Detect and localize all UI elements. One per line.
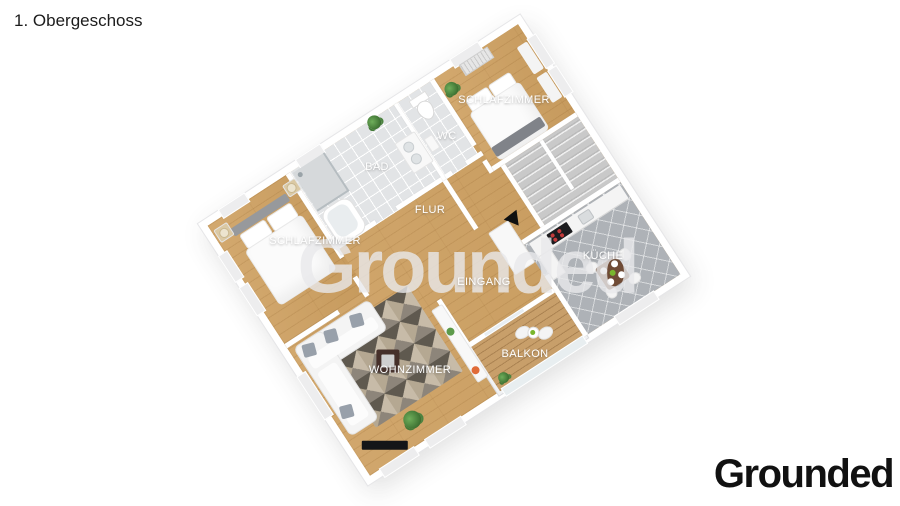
floorplan-canvas: Grounded SCHLAFZIMMER WC BAD FLUR SCHLAF…	[0, 0, 900, 506]
grounded-logo: Grounded	[714, 452, 893, 497]
room-label-schlafzimmer-top: SCHLAFZIMMER	[458, 94, 550, 106]
room-label-balkon: BALKON	[501, 348, 548, 360]
room-label-kueche: KÜCHE	[583, 250, 624, 262]
room-label-schlafzimmer-left: SCHLAFZIMMER	[269, 235, 361, 247]
page-title: 1. Obergeschoss	[14, 11, 143, 31]
room-label-flur: FLUR	[415, 204, 445, 216]
room-label-wohnzimmer: WOHNZIMMER	[369, 364, 451, 376]
room-label-eingang: EINGANG	[457, 276, 511, 288]
room-label-bad: BAD	[365, 161, 389, 173]
room-label-wc: WC	[437, 130, 456, 142]
tv	[362, 441, 408, 450]
